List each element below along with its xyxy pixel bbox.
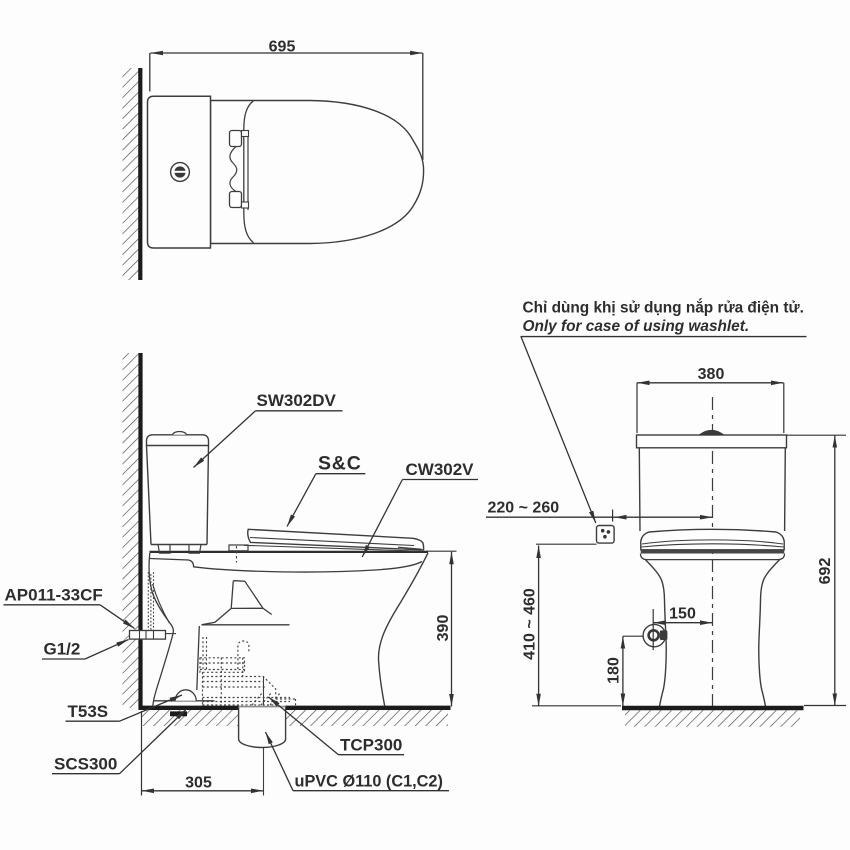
svg-text:180: 180 [606, 657, 623, 684]
svg-text:G1/2: G1/2 [44, 640, 81, 659]
svg-text:Only for case of using washlet: Only for case of using washlet. [523, 318, 750, 335]
svg-text:410 ~ 460: 410 ~ 460 [522, 588, 539, 660]
svg-text:380: 380 [698, 366, 725, 383]
svg-text:SCS300: SCS300 [54, 755, 117, 774]
svg-text:220 ~ 260: 220 ~ 260 [488, 500, 560, 517]
svg-text:SW302DV: SW302DV [257, 391, 337, 410]
svg-text:305: 305 [185, 775, 212, 792]
svg-text:Chỉ dùng khị sử dụng nắp rửa đ: Chỉ dùng khị sử dụng nắp rửa điện tử. [523, 299, 804, 317]
svg-text:TCP300: TCP300 [340, 736, 402, 755]
svg-text:390: 390 [435, 615, 452, 642]
svg-text:T53S: T53S [68, 702, 109, 721]
svg-text:150: 150 [669, 606, 696, 623]
svg-text:692: 692 [817, 558, 834, 585]
svg-text:CW302V: CW302V [406, 460, 475, 479]
svg-text:S&C: S&C [318, 453, 362, 475]
svg-text:uPVC Ø110 (C1,C2): uPVC Ø110 (C1,C2) [295, 773, 443, 791]
svg-text:695: 695 [269, 39, 296, 56]
svg-text:AP011-33CF: AP011-33CF [5, 586, 103, 605]
